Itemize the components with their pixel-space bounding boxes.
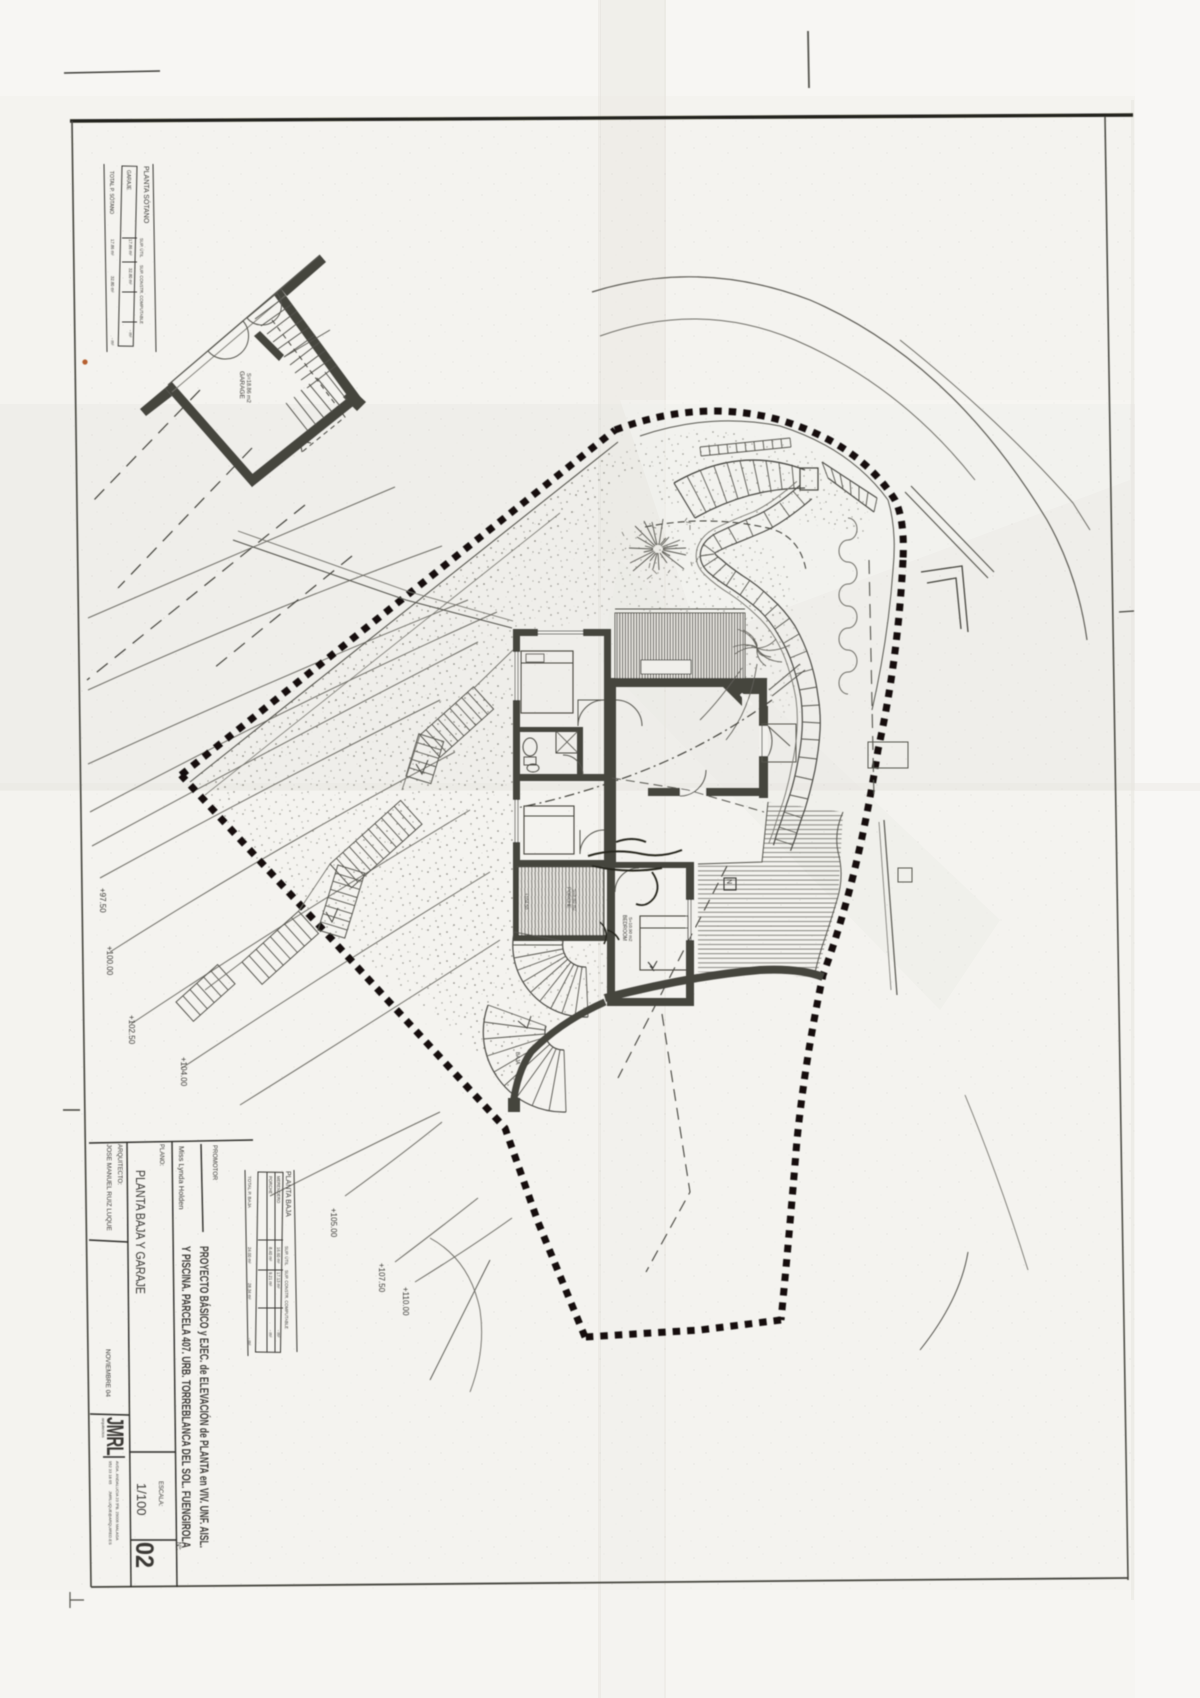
svg-text:PLANTA BAJA Y GARAJE: PLANTA BAJA Y GARAJE [133,1170,148,1294]
svg-text:S=8.80 m2: S=8.80 m2 [572,889,577,911]
svg-text:PLANO:: PLANO: [158,1144,164,1166]
svg-text:952 33 18 65: 952 33 18 65 [108,1461,113,1485]
svg-text:PLANTA SÓTANO: PLANTA SÓTANO [142,166,151,224]
svg-text:02: 02 [130,1542,158,1568]
svg-text:TOTAL P. BAJA: TOTAL P. BAJA [247,1176,252,1209]
svg-text:PLANTA BAJA: PLANTA BAJA [284,1171,291,1217]
svg-text:SUP. CONSTR. COMPUTABLE: SUP. CONSTR. COMPUTABLE [284,1270,289,1329]
svg-text:GARAGE: GARAGE [238,371,245,399]
svg-text:PROMOTOR: PROMOTOR [211,1145,217,1181]
svg-text:BEDROOM: BEDROOM [621,915,627,941]
svg-text:- m²: - m² [128,330,133,338]
svg-text:17.13 m²: 17.13 m² [276,1272,281,1289]
svg-text:S=18.86 m2: S=18.86 m2 [245,373,251,403]
svg-text:- m²: - m² [247,1338,252,1346]
svg-text:JMRLUQUE@ARQUIRED.ES: JMRLUQUE@ARQUIRED.ES [108,1491,113,1545]
svg-text:SUP. CONSTR. COMPUTABLE: SUP. CONSTR. COMPUTABLE [139,265,144,324]
svg-text:JOSE MANUEL RUIZ LUQUE: JOSE MANUEL RUIZ LUQUE [105,1144,112,1231]
svg-text:- m²: - m² [276,1330,281,1338]
svg-text:+107.50: +107.50 [377,1263,386,1293]
svg-text:NOVIEMBRE 04: NOVIEMBRE 04 [104,1349,111,1397]
svg-text:ARQUITECTO:: ARQUITECTO: [116,1144,122,1185]
svg-text:+110.00: +110.00 [401,1287,410,1316]
svg-text:17.86 m²: 17.86 m² [128,239,133,256]
svg-text:SUP. ÚTIL: SUP. ÚTIL [139,238,144,258]
svg-text:9.21 m²: 9.21 m² [268,1272,273,1287]
svg-text:Y PISCINA. PARCELA 407. URB. T: Y PISCINA. PARCELA 407. URB. TORREBLANCA… [179,1246,193,1548]
svg-text:SUP. ÚTIL: SUP. ÚTIL [284,1246,289,1266]
svg-text:+104.00: +104.00 [179,1057,188,1087]
svg-text:32.80 m²: 32.80 m² [110,276,115,293]
svg-text:arquitectos: arquitectos [101,1418,106,1438]
svg-text:+102.50: +102.50 [127,1015,136,1045]
svg-text:24.00 m²: 24.00 m² [247,1247,252,1264]
svg-text:8.40 m²: 8.40 m² [268,1247,273,1262]
svg-text:BAJA: BAJA [514,1052,520,1065]
svg-text:PORCHE: PORCHE [268,1176,273,1194]
svg-text:N: N [725,879,732,884]
svg-text:+100.00: +100.00 [105,946,114,976]
svg-text:28.34 m²: 28.34 m² [247,1283,252,1300]
svg-text:1/100: 1/100 [134,1483,149,1516]
svg-text:PROYECTO BÁSICO y EJEC. de ELE: PROYECTO BÁSICO y EJEC. de ELEVACIÓN de … [197,1246,212,1548]
svg-text:Miss Lynda Holden: Miss Lynda Holden [177,1146,186,1210]
svg-text:17.86 m²: 17.86 m² [110,239,115,256]
svg-text:AVDA. ANDALUCIA 23 5ºB. 29006: AVDA. ANDALUCIA 23 5ºB. 29006 MALAGA [115,1461,120,1541]
svg-text:PORCHE: PORCHE [565,887,571,909]
svg-text:ESCALA:: ESCALA: [157,1481,163,1507]
svg-text:S=10.90 m2: S=10.90 m2 [628,917,633,942]
svg-text:- m²: - m² [268,1330,273,1338]
svg-text:+105.00: +105.00 [329,1208,338,1238]
svg-text:MERENDERO: MERENDERO [276,1176,281,1204]
svg-text:32.80 m²: 32.80 m² [128,268,133,285]
svg-text:- m²: - m² [110,338,115,346]
svg-text:+97.50: +97.50 [98,888,107,913]
svg-text:16.60 m²: 16.60 m² [276,1247,281,1264]
svg-text:GARAJE: GARAJE [125,170,131,191]
svg-text:+104.50: +104.50 [524,893,529,910]
svg-text:TOTAL P. SÓTANO: TOTAL P. SÓTANO [108,171,115,214]
